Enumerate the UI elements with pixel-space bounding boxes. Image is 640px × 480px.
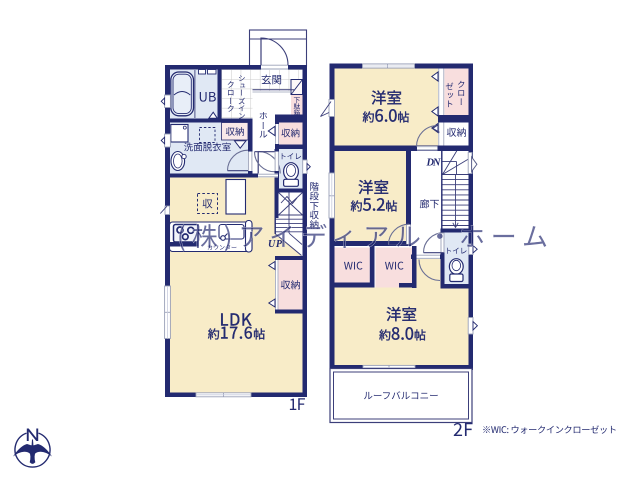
svg-text:収: 収 bbox=[202, 197, 213, 212]
svg-text:ルーフバルコニー: ルーフバルコニー bbox=[363, 388, 438, 402]
svg-text:1F: 1F bbox=[289, 391, 306, 415]
svg-text:DN: DN bbox=[426, 158, 441, 169]
svg-text:廊下: 廊下 bbox=[420, 196, 440, 211]
svg-text:下駄箱: 下駄箱 bbox=[292, 96, 302, 117]
svg-text:クローク: クローク bbox=[225, 80, 236, 113]
svg-text:UB: UB bbox=[199, 87, 217, 106]
svg-text:洗面脱衣室: 洗面脱衣室 bbox=[184, 139, 232, 153]
svg-text:シューズイン: シューズイン bbox=[236, 74, 247, 120]
svg-text:収納: 収納 bbox=[447, 124, 467, 139]
svg-text:WIC: WIC bbox=[344, 259, 363, 274]
svg-text:収納: 収納 bbox=[281, 277, 301, 292]
svg-text:ホール: ホール bbox=[257, 111, 270, 138]
svg-text:※WIC: ウォークインクローゼット: ※WIC: ウォークインクローゼット bbox=[482, 422, 617, 436]
svg-text:収納: 収納 bbox=[225, 124, 244, 138]
svg-text:WIC: WIC bbox=[385, 259, 404, 274]
svg-text:トイレ: トイレ bbox=[279, 151, 302, 162]
svg-text:玄関: 玄関 bbox=[261, 72, 282, 87]
svg-text:ゼット: ゼット bbox=[444, 82, 456, 108]
svg-text:2F: 2F bbox=[453, 416, 473, 442]
svg-text:クロー: クロー bbox=[455, 80, 467, 106]
svg-text:収納: 収納 bbox=[281, 126, 300, 140]
